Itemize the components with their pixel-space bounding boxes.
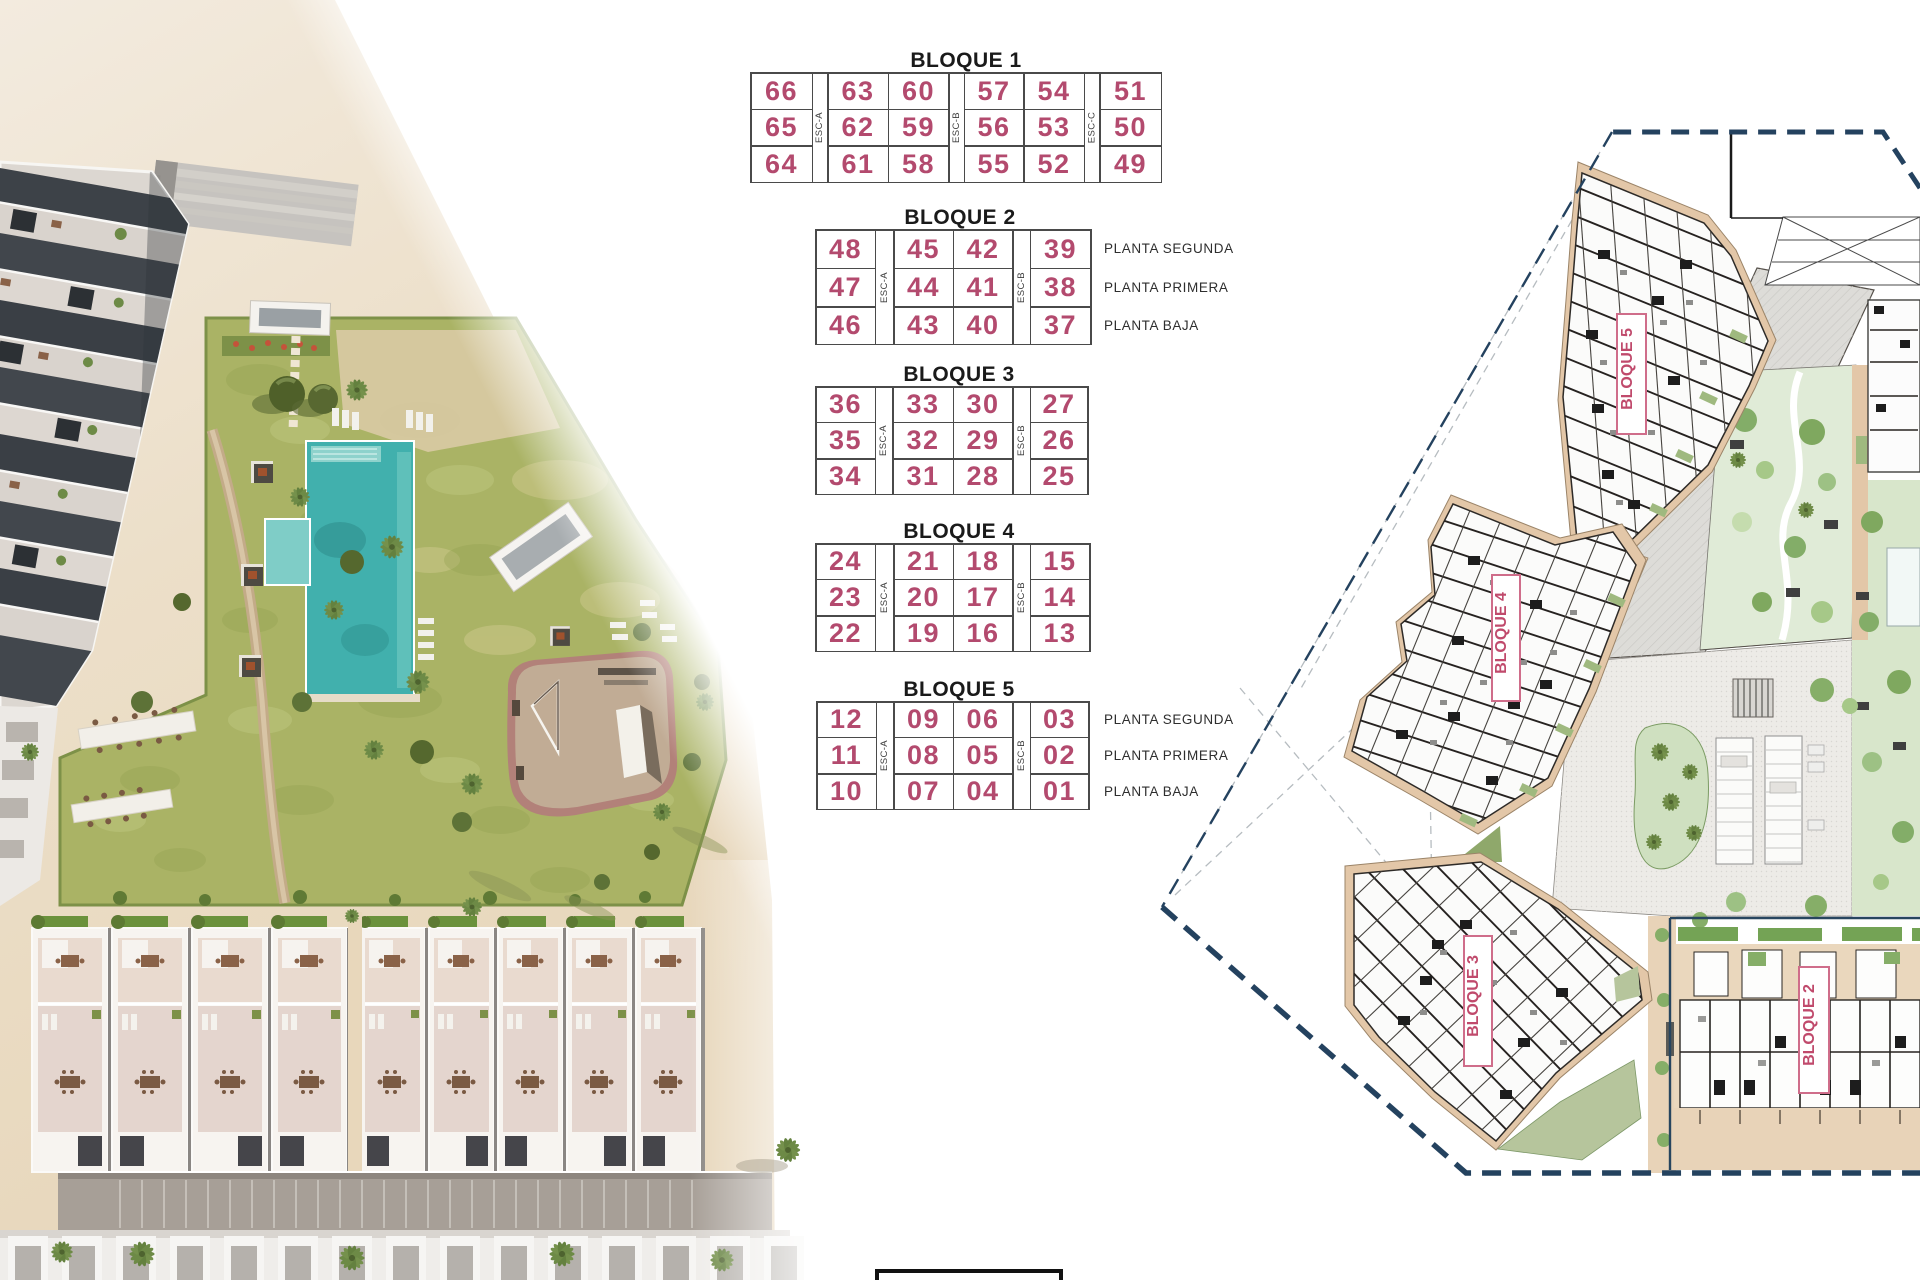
svg-text:BLOQUE 5: BLOQUE 5 (1619, 328, 1636, 410)
svg-text:BLOQUE 3: BLOQUE 3 (1465, 955, 1482, 1037)
svg-text:BLOQUE 4: BLOQUE 4 (1493, 592, 1510, 674)
svg-text:BLOQUE 2: BLOQUE 2 (1801, 984, 1818, 1066)
